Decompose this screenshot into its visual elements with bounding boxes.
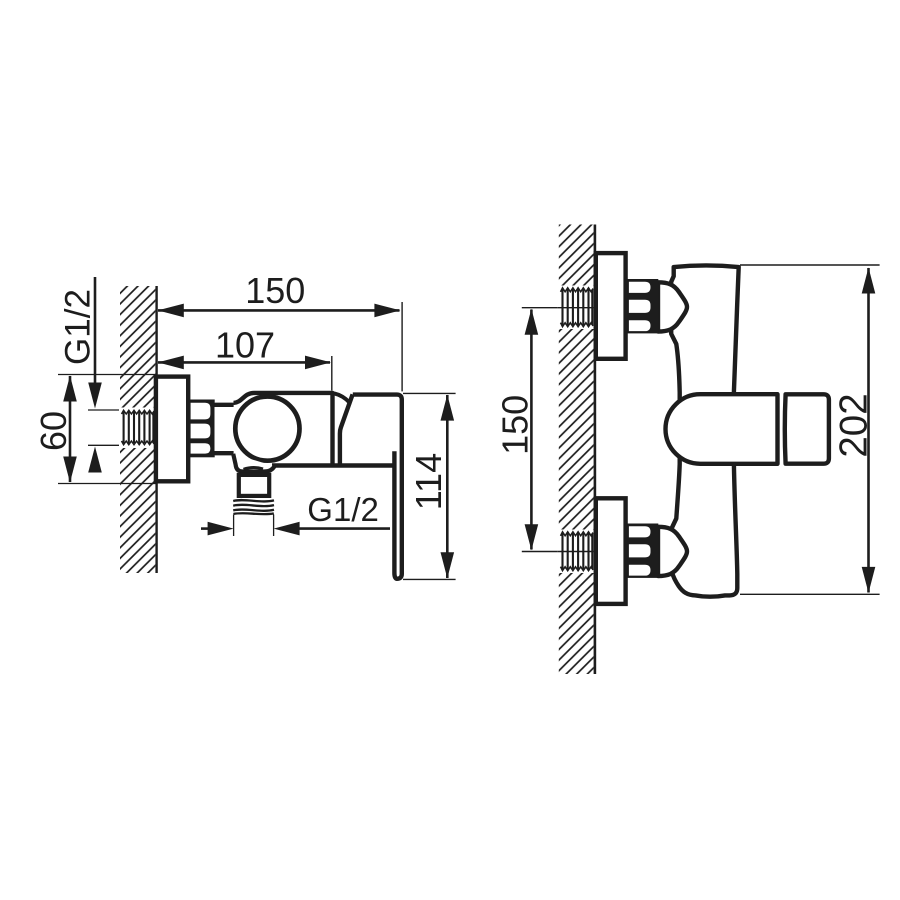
svg-text:60: 60 [33,411,74,451]
svg-text:107: 107 [215,325,275,366]
svg-text:150: 150 [245,270,305,311]
svg-text:G1/2: G1/2 [58,289,97,365]
svg-text:150: 150 [495,395,536,455]
svg-text:202: 202 [833,393,876,457]
svg-text:114: 114 [408,453,449,510]
svg-text:G1/2: G1/2 [307,491,379,528]
